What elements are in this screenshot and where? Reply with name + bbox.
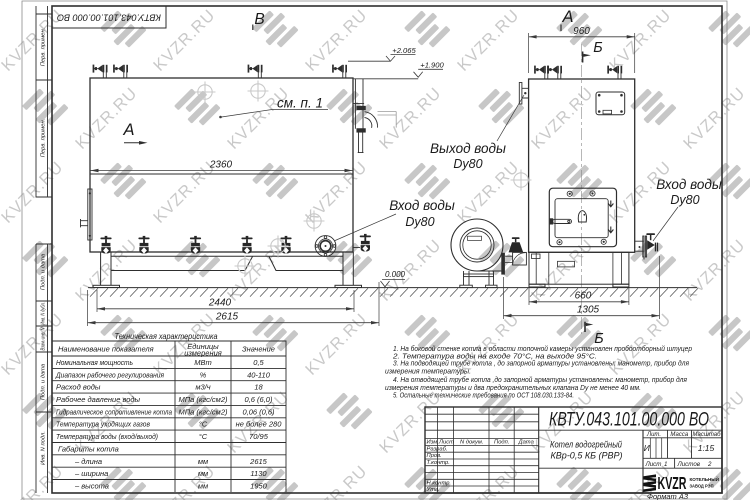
svg-text:м3/ч: м3/ч [195,383,210,392]
svg-text:ЗАВОД РЭП: ЗАВОД РЭП [690,483,714,489]
svg-text:Температура уходящих газов: Температура уходящих газов [56,420,150,429]
svg-text:Разраб.: Разраб. [427,446,448,452]
svg-text:Листов: Листов [677,461,701,468]
svg-text:В: В [254,11,264,28]
svg-text:1305: 1305 [577,305,600,316]
svg-text:И: И [644,443,651,453]
svg-text:– ширина: – ширина [74,469,108,478]
svg-text:МВт: МВт [194,358,212,367]
svg-text:Н.контр.: Н.контр. [427,481,452,487]
svg-text:измерения: измерения [184,348,222,357]
svg-text:КВТУ.043.101.00.000 ВО: КВТУ.043.101.00.000 ВО [549,409,709,431]
svg-text:Dy80: Dy80 [405,215,434,229]
svg-text:N докум.: N докум. [460,440,483,446]
svg-text:18: 18 [254,383,263,392]
svg-text:см. п. 1: см. п. 1 [277,96,323,111]
svg-text:Выход воды: Выход воды [430,141,506,156]
svg-text:0,06 (0,6): 0,06 (0,6) [242,407,275,416]
svg-text:МПа (кгс/см2): МПа (кгс/см2) [179,395,228,404]
svg-text:+1.900: +1.900 [420,61,444,70]
svg-text:мм: мм [198,482,208,491]
svg-text:40-110: 40-110 [247,370,271,379]
svg-text:°С: °С [199,420,208,429]
svg-text:– высота: – высота [74,482,109,491]
svg-text:Подп. и дата: Подп. и дата [41,253,47,290]
svg-text:Номинальная мощность: Номинальная мощность [56,358,133,367]
svg-text:1130: 1130 [250,469,267,478]
svg-text:МПа (кгс/см2): МПа (кгс/см2) [179,407,228,416]
svg-text:Масштаб: Масштаб [692,432,721,438]
svg-text:Утв.: Утв. [426,487,440,493]
svg-text:Перв. примен.: Перв. примен. [41,28,47,67]
svg-text:Диапазон рабочего регулировани: Диапазон рабочего регулирования [55,370,164,379]
svg-text:Перв. примен.: Перв. примен. [41,119,47,158]
svg-text:А: А [122,121,134,139]
svg-text:Подп. и дата: Подп. и дата [41,363,47,400]
svg-text:0.000: 0.000 [385,270,406,279]
svg-text:2440: 2440 [208,298,232,309]
svg-text:2: 2 [707,461,712,468]
svg-text:Габариты котла: Габариты котла [58,444,119,453]
svg-text:Изм.: Изм. [427,440,439,446]
svg-text:1:15: 1:15 [698,443,715,453]
svg-text:2615: 2615 [215,311,239,322]
svg-text:0,5: 0,5 [253,358,264,367]
svg-text:+2.065: +2.065 [392,46,416,55]
svg-text:Температура воды (вход/выход): Температура воды (вход/выход) [56,432,158,441]
svg-text:мм: мм [198,457,208,466]
svg-text:Дата: Дата [518,440,535,446]
svg-text:%: % [200,370,207,379]
svg-text:2615: 2615 [249,457,268,466]
svg-text:660: 660 [575,291,592,302]
svg-text:Вход воды: Вход воды [656,177,722,192]
svg-text:1950: 1950 [250,482,268,491]
svg-text:Инв. N дубл.: Инв. N дубл. [41,302,47,325]
svg-text:Вход воды: Вход воды [389,198,455,213]
svg-text:KVZR: KVZR [658,473,687,493]
svg-text:°С: °С [199,432,208,441]
svg-text:Dy80: Dy80 [453,157,482,171]
svg-text:не более 280: не более 280 [236,420,283,429]
svg-text:Котел водогрейный: Котел водогрейный [550,439,622,449]
svg-text:Инв. N подл.: Инв. N подл. [41,431,47,465]
svg-text:0,6 (6,0): 0,6 (6,0) [245,395,273,404]
svg-text:Б: Б [593,40,602,56]
svg-text:Т.контр.: Т.контр. [427,460,450,466]
svg-text:Значение: Значение [242,345,275,354]
svg-text:Масса: Масса [670,432,688,438]
svg-text:Техническая характеристика: Техническая характеристика [115,331,218,341]
svg-text:– длина: – длина [74,457,102,466]
svg-text:Формат А3: Формат А3 [647,492,689,500]
svg-text:Лист: Лист [645,461,662,468]
svg-text:960: 960 [573,26,590,37]
svg-text:А: А [561,8,573,26]
svg-text:КВТУ.043.101.00.000 ВО: КВТУ.043.101.00.000 ВО [56,12,161,23]
svg-text:Подп.: Подп. [494,440,509,446]
svg-text:5. Остальные технические треб: 5. Остальные технические требования по О… [393,391,574,400]
svg-text:Гидравлическое сопротивление к: Гидравлическое сопротивление котла [56,407,172,416]
svg-text:КВр-0,5 КБ (РВР): КВр-0,5 КБ (РВР) [551,451,623,461]
svg-text:70/95: 70/95 [249,432,269,441]
svg-text:2360: 2360 [209,160,233,171]
svg-text:Наименование показателя: Наименование показателя [58,345,154,354]
svg-text:Dy80: Dy80 [670,193,699,207]
svg-text:мм: мм [198,469,208,478]
svg-text:Лит.: Лит. [646,432,661,438]
svg-text:Расход воды: Расход воды [56,383,101,392]
svg-text:Пров.: Пров. [427,453,442,459]
svg-text:Рабочее давление воды: Рабочее давление воды [56,395,141,404]
svg-text:1: 1 [664,461,667,468]
svg-text:Лист: Лист [438,440,454,446]
svg-text:Взам. инв. N: Взам. инв. N [41,327,47,350]
